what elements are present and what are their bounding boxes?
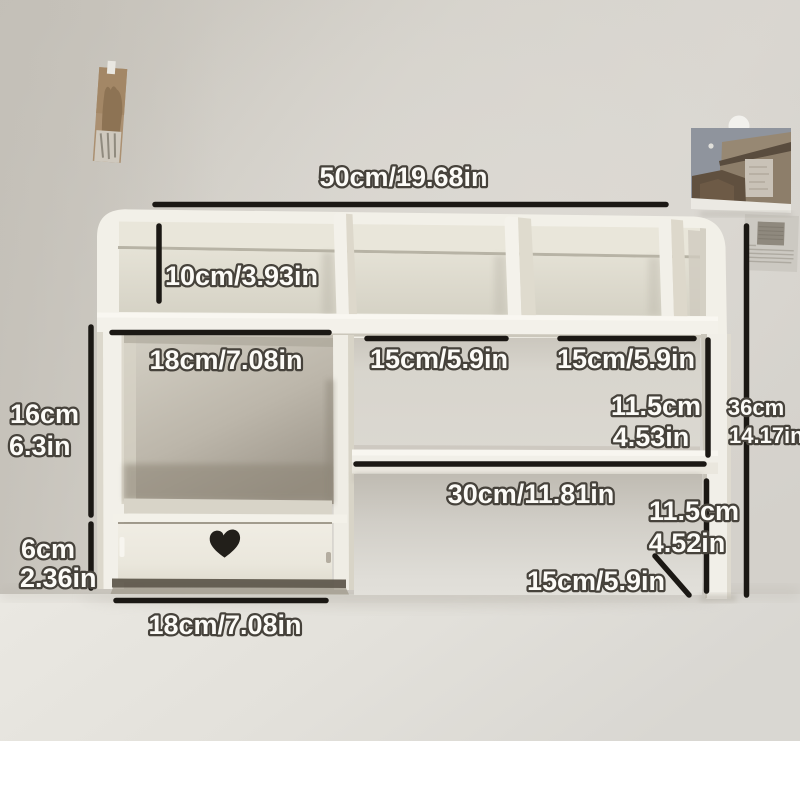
svg-text:18cm/7.08in: 18cm/7.08in — [149, 345, 302, 375]
svg-text:11.5cm: 11.5cm — [649, 496, 739, 526]
svg-text:11.5cm: 11.5cm — [611, 391, 701, 421]
svg-text:10cm/3.93in: 10cm/3.93in — [165, 261, 318, 291]
svg-text:2.36in: 2.36in — [20, 563, 97, 593]
svg-text:4.53in: 4.53in — [613, 422, 690, 452]
svg-text:15cm/5.9in: 15cm/5.9in — [370, 344, 508, 374]
svg-text:18cm/7.08in: 18cm/7.08in — [148, 610, 301, 640]
svg-text:50cm/19.68in: 50cm/19.68in — [319, 162, 487, 192]
svg-text:4.52in: 4.52in — [649, 528, 726, 558]
svg-text:36cm: 36cm — [728, 395, 784, 420]
svg-text:6.3in: 6.3in — [9, 431, 71, 461]
svg-text:15cm/5.9in: 15cm/5.9in — [557, 344, 695, 374]
svg-text:14.17in: 14.17in — [729, 423, 800, 448]
svg-text:30cm/11.81in: 30cm/11.81in — [448, 479, 615, 509]
svg-text:16cm: 16cm — [10, 399, 79, 429]
svg-text:15cm/5.9in: 15cm/5.9in — [527, 566, 665, 596]
svg-text:6cm: 6cm — [21, 534, 75, 564]
